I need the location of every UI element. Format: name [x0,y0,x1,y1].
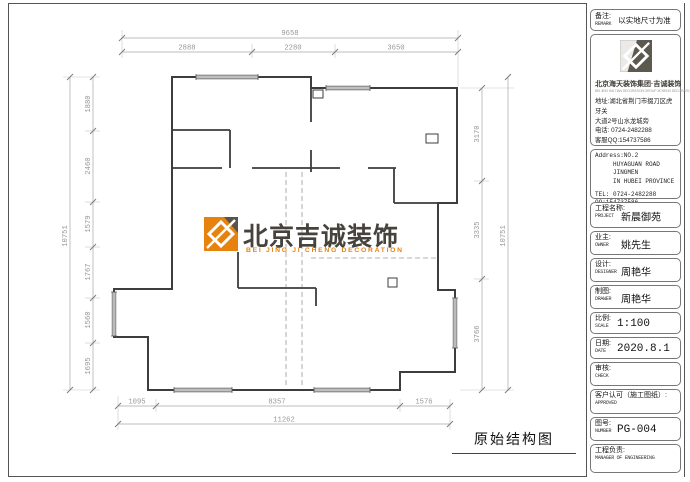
remark-label: 备注: [595,13,611,21]
field-label-en: APPROVED [595,400,655,406]
field-manager: 工程负责: MANAGER OF ENGINEERING [590,444,681,473]
field-owner: 业主: OWNER 姚先生 [590,231,681,255]
field-value: 周艳华 [621,263,651,278]
dim-top-seg: 3650 [387,45,404,53]
dim-left-seg: 1880 [85,95,93,112]
field-check: 审核: CHECK [590,362,681,386]
company-address: 地址:湖北省荆门市掇刀区虎牙关 大道2号山水龙城旁 电话: 0724-24822… [595,97,676,146]
titleblock-logo-icon [620,40,652,72]
drawing-title: 原始结构图 [452,429,576,454]
company-name-en: BEI JING HAI TIAN DECORATION GROUP JICHE… [595,89,676,93]
column [388,278,397,287]
watermark-company-tagline: BEI JING JI CHENG DECORATION [246,247,404,254]
address-en-line-3: IN HUBEI PROVINCE [595,178,676,187]
window-top-left [196,74,258,80]
address-en-line-1: Address:NO.2 [595,152,676,161]
field-value: 姚先生 [621,236,651,251]
dim-top-seg: 2280 [284,45,301,53]
field-designer: 设计: DESIGNER 周艳华 [590,258,681,282]
company-address-en-box: Address:NO.2 HUYAGUAN ROAD JINGMEN IN HU… [590,149,681,199]
dim-left-seg: 1767 [85,263,93,280]
title-block: 备注: REMARK 以实地尺寸为准 北京海天装饰集团·吉诚装饰 BEI JIN… [586,3,684,477]
columns [313,90,438,287]
company-box: 北京海天装饰集团·吉诚装饰 BEI JING HAI TIAN DECORATI… [590,34,681,146]
dim-top-seg: 2888 [178,45,195,53]
field-label-en: CHECK [595,373,655,379]
dim-top-total: 9658 [281,30,298,38]
address-line-1: 地址:湖北省荆门市掇刀区虎牙关 [595,97,676,117]
window-top-right [326,85,370,91]
column [426,134,438,143]
remark-value: 以实地尺寸为准 [618,15,671,26]
field-scale: 比例: SCALE 1:100 [590,312,681,334]
dim-left-total: 10751 [62,225,70,247]
field-value: 2020.8.1 [617,343,670,355]
column [313,90,323,98]
field-value: 1:100 [617,318,650,330]
company-logo-icon [204,217,238,251]
field-drawer: 制图: DRAWER 周艳华 [590,285,681,309]
dim-bottom-seg: 1576 [415,399,432,407]
remark-label-en: REMARK [595,21,611,27]
window-bottom-right [314,387,370,393]
dim-left-seg: 1579 [85,215,93,232]
dim-left-seg: 2460 [85,157,93,174]
dim-left-seg: 1695 [85,357,93,374]
address-en-line-2: HUYAGUAN ROAD JINGMEN [595,161,676,178]
phone-line: 电话: 0724-2482288 [595,126,676,136]
dim-right-seg: 3335 [474,221,482,238]
dim-left-seg: 1560 [85,311,93,328]
field-label: 客户认可（施工图纸）: [595,392,676,400]
window-left [111,292,117,336]
dim-right-total: 10751 [500,225,508,247]
qq-line: 客服QQ:154737586 [595,136,676,146]
window-bottom-left [174,387,232,393]
dim-bottom-total: 11262 [273,417,295,425]
field-value: 新晨御苑 [621,208,661,223]
dim-bottom-seg: 8357 [268,399,285,407]
field-label: 工程负责: [595,447,676,455]
dashed-lines [286,172,438,388]
field-label-en: MANAGER OF ENGINEERING [595,455,655,461]
dim-bottom-seg: 1095 [128,399,145,407]
field-project: 工程名称: PROJECT 新晨御苑 [590,202,681,228]
tel-en-line: TEL: 0724-2482288 [595,191,676,200]
dim-right-seg: 3170 [474,125,482,142]
dim-right-seg: 3766 [474,325,482,342]
remark-box: 备注: REMARK 以实地尺寸为准 [590,9,681,31]
window-right [452,298,458,348]
company-name: 北京海天装饰集团·吉诚装饰 [595,79,676,89]
field-value: PG-004 [617,424,657,436]
field-value: 周艳华 [621,290,651,305]
field-date: 日期: DATE 2020.8.1 [590,337,681,359]
field-approved: 客户认可（施工图纸）: APPROVED [590,389,681,414]
field-label: 审核: [595,365,676,373]
field-number: 图号: NUMBER PG-004 [590,417,681,441]
address-line-2: 大道2号山水龙城旁 [595,117,676,127]
inner-walls [172,88,438,306]
